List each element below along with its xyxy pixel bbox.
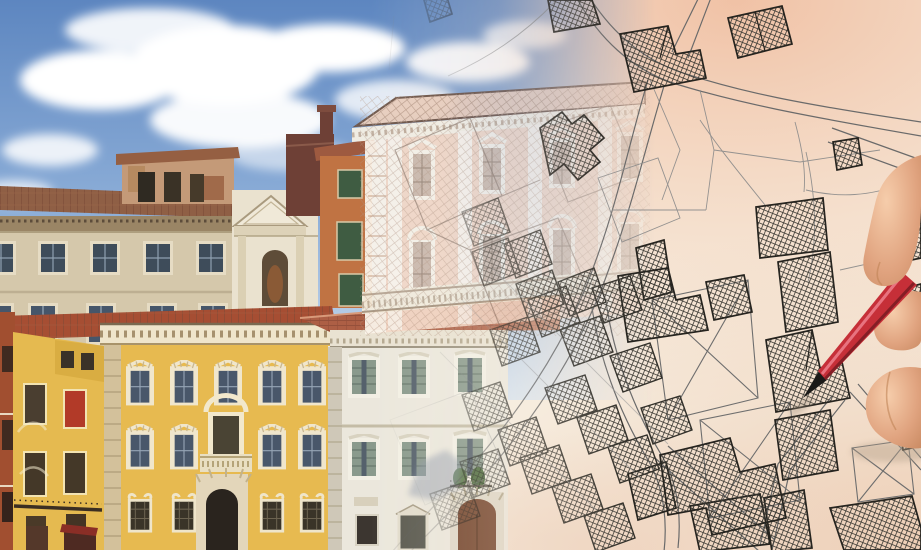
hatched-building [778, 252, 838, 332]
green-shutter-window [337, 222, 362, 260]
window [170, 361, 198, 406]
window [126, 361, 154, 406]
attic-window [81, 353, 94, 370]
window [170, 425, 198, 470]
window [172, 494, 196, 532]
altana-brick-patch [204, 176, 224, 200]
window [399, 514, 427, 550]
window [300, 494, 324, 532]
window [298, 361, 326, 406]
window [90, 241, 120, 275]
window [126, 425, 154, 470]
window [24, 384, 46, 424]
painted-frieze [0, 216, 238, 233]
window [64, 452, 86, 494]
window [258, 361, 286, 406]
window [196, 241, 226, 275]
plaque [354, 497, 378, 506]
altana-opening [138, 172, 155, 202]
scene-canvas [0, 0, 921, 550]
hatched-building [756, 198, 828, 258]
shop-door [26, 526, 48, 550]
chimney-cap [317, 105, 336, 112]
grand-yellow-palazzo [100, 323, 336, 550]
window [260, 494, 284, 532]
attic-window [61, 351, 74, 368]
small-yellow-house [13, 332, 104, 550]
hatched-building [706, 275, 752, 320]
window [38, 241, 68, 275]
window [398, 352, 430, 398]
window [24, 452, 46, 496]
window [348, 352, 380, 398]
green-shutter-window [338, 170, 362, 198]
window-glass [213, 416, 239, 454]
window [2, 346, 13, 372]
window [348, 434, 380, 480]
hatched-building [833, 138, 862, 170]
window [0, 241, 16, 275]
grille-window [356, 515, 378, 545]
window [2, 420, 13, 450]
church-entablature [234, 226, 306, 236]
hatched-building [775, 410, 838, 480]
portal-opening [206, 489, 238, 550]
window [298, 425, 326, 470]
rooftop-altana [116, 147, 240, 204]
pedimented-bay-window [396, 505, 430, 550]
church-pilaster [238, 236, 246, 320]
window-red-curtain [64, 390, 86, 428]
white-grey-palazzo [328, 330, 508, 550]
window [128, 494, 152, 532]
window [2, 492, 13, 522]
window [143, 241, 173, 275]
palazzo-portal [196, 468, 251, 550]
altana-opening [164, 172, 181, 202]
green-shutter-window [339, 274, 363, 306]
window [258, 425, 286, 470]
altana-opening [190, 174, 204, 202]
rust-building [0, 312, 15, 550]
chimney [320, 110, 333, 138]
niche-statue [267, 265, 283, 303]
composite-scene [0, 0, 921, 550]
